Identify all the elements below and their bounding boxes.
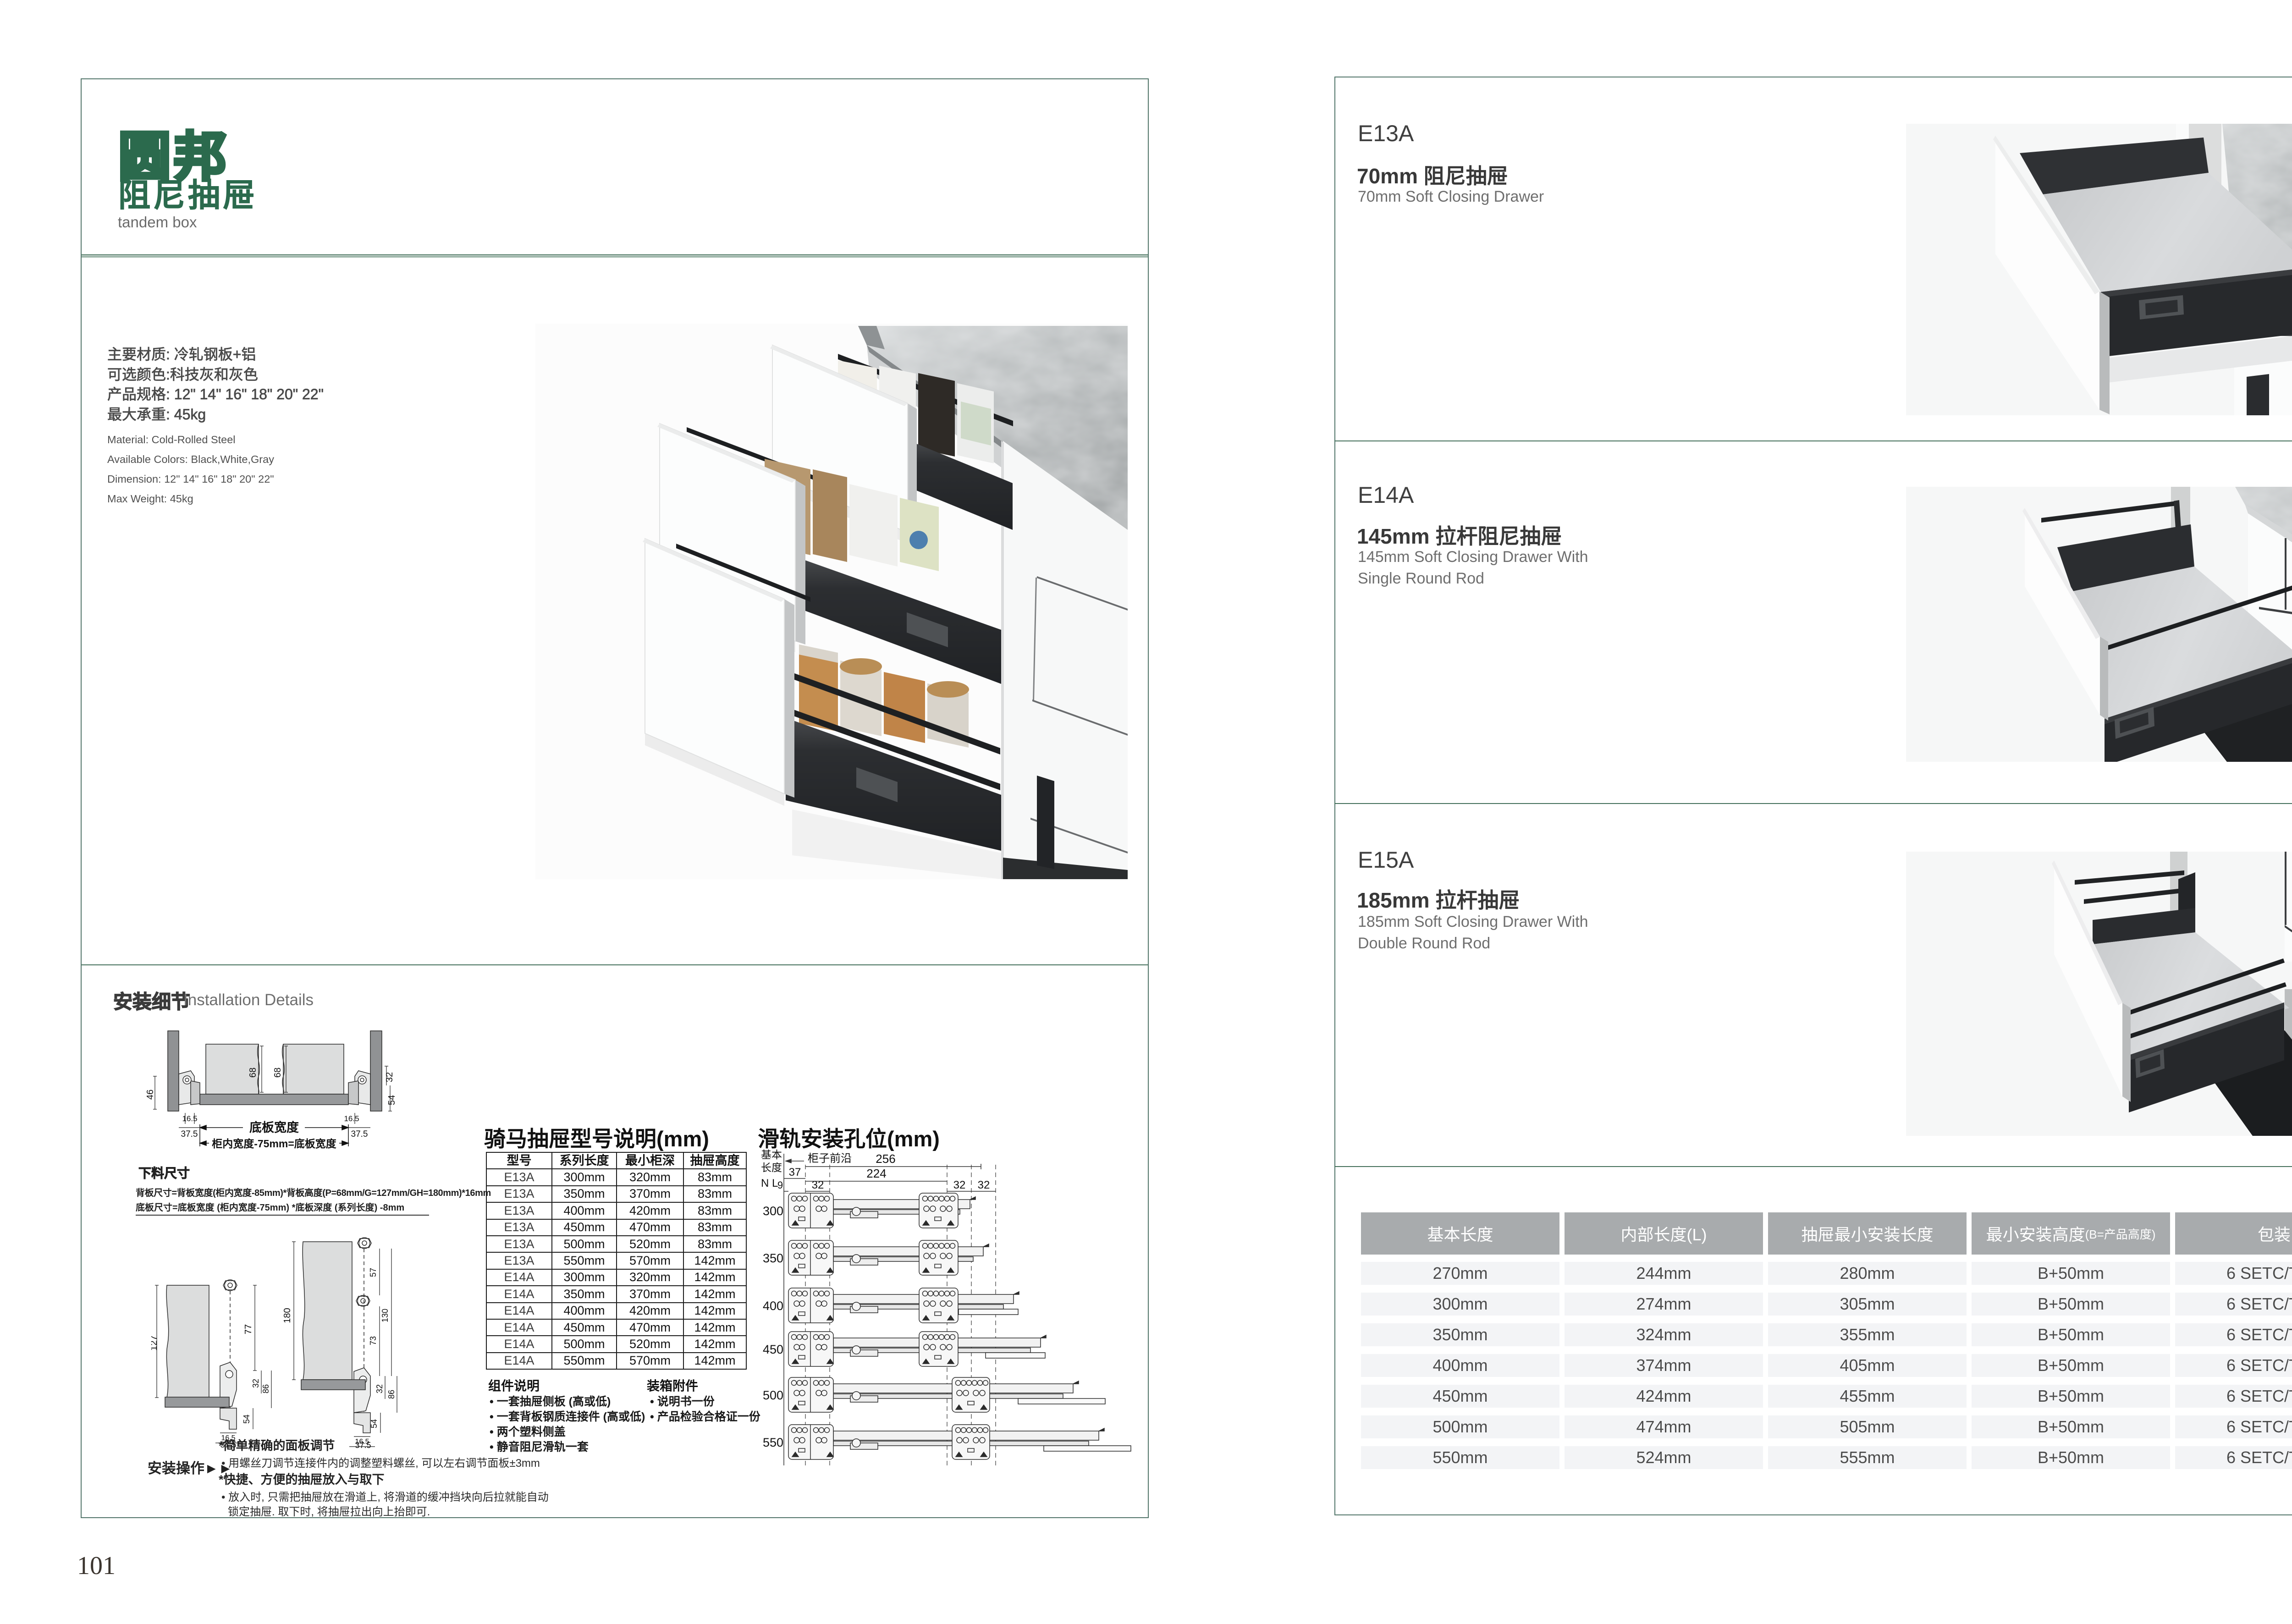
svg-text:柜内宽度-75mm=底板宽度: 柜内宽度-75mm=底板宽度 <box>212 1138 337 1150</box>
svg-text:550: 550 <box>763 1436 783 1449</box>
svg-text:37: 37 <box>789 1166 801 1178</box>
svg-text:基本: 基本 <box>761 1149 782 1161</box>
svg-text:68: 68 <box>273 1068 283 1078</box>
svg-text:400: 400 <box>763 1299 783 1313</box>
svg-text:32: 32 <box>953 1179 966 1191</box>
svg-text:224: 224 <box>866 1167 886 1180</box>
svg-text:86: 86 <box>261 1384 270 1393</box>
svg-text:256: 256 <box>876 1152 895 1166</box>
svg-text:73: 73 <box>369 1336 378 1345</box>
svg-text:37.5: 37.5 <box>355 1441 371 1448</box>
svg-text:127: 127 <box>151 1335 159 1350</box>
svg-text:32: 32 <box>385 1072 395 1082</box>
svg-text:N L: N L <box>761 1177 778 1189</box>
svg-text:46: 46 <box>147 1090 155 1100</box>
svg-text:500: 500 <box>763 1388 783 1402</box>
svg-text:长度: 长度 <box>761 1162 782 1173</box>
svg-text:77: 77 <box>243 1324 253 1334</box>
svg-text:37.5: 37.5 <box>351 1129 368 1139</box>
svg-text:54: 54 <box>387 1095 397 1105</box>
svg-text:32: 32 <box>978 1179 990 1191</box>
svg-text:300: 300 <box>763 1204 783 1218</box>
svg-text:57: 57 <box>369 1268 378 1277</box>
svg-text:9: 9 <box>777 1179 783 1191</box>
svg-text:68: 68 <box>248 1068 258 1078</box>
svg-text:32: 32 <box>812 1179 824 1191</box>
svg-text:16.5: 16.5 <box>344 1114 359 1123</box>
svg-text:32: 32 <box>251 1379 260 1388</box>
svg-text:54: 54 <box>369 1419 379 1428</box>
svg-text:180: 180 <box>282 1308 292 1323</box>
svg-text:37.5: 37.5 <box>181 1129 198 1139</box>
svg-text:130: 130 <box>380 1309 390 1322</box>
svg-text:54: 54 <box>242 1415 251 1424</box>
svg-text:柜子前沿: 柜子前沿 <box>808 1152 852 1165</box>
svg-text:86: 86 <box>387 1390 396 1399</box>
svg-text:450: 450 <box>763 1343 783 1356</box>
svg-text:底板宽度: 底板宽度 <box>249 1120 299 1134</box>
svg-text:350: 350 <box>763 1251 783 1265</box>
svg-text:32: 32 <box>375 1384 384 1393</box>
svg-text:16.5: 16.5 <box>182 1114 197 1123</box>
